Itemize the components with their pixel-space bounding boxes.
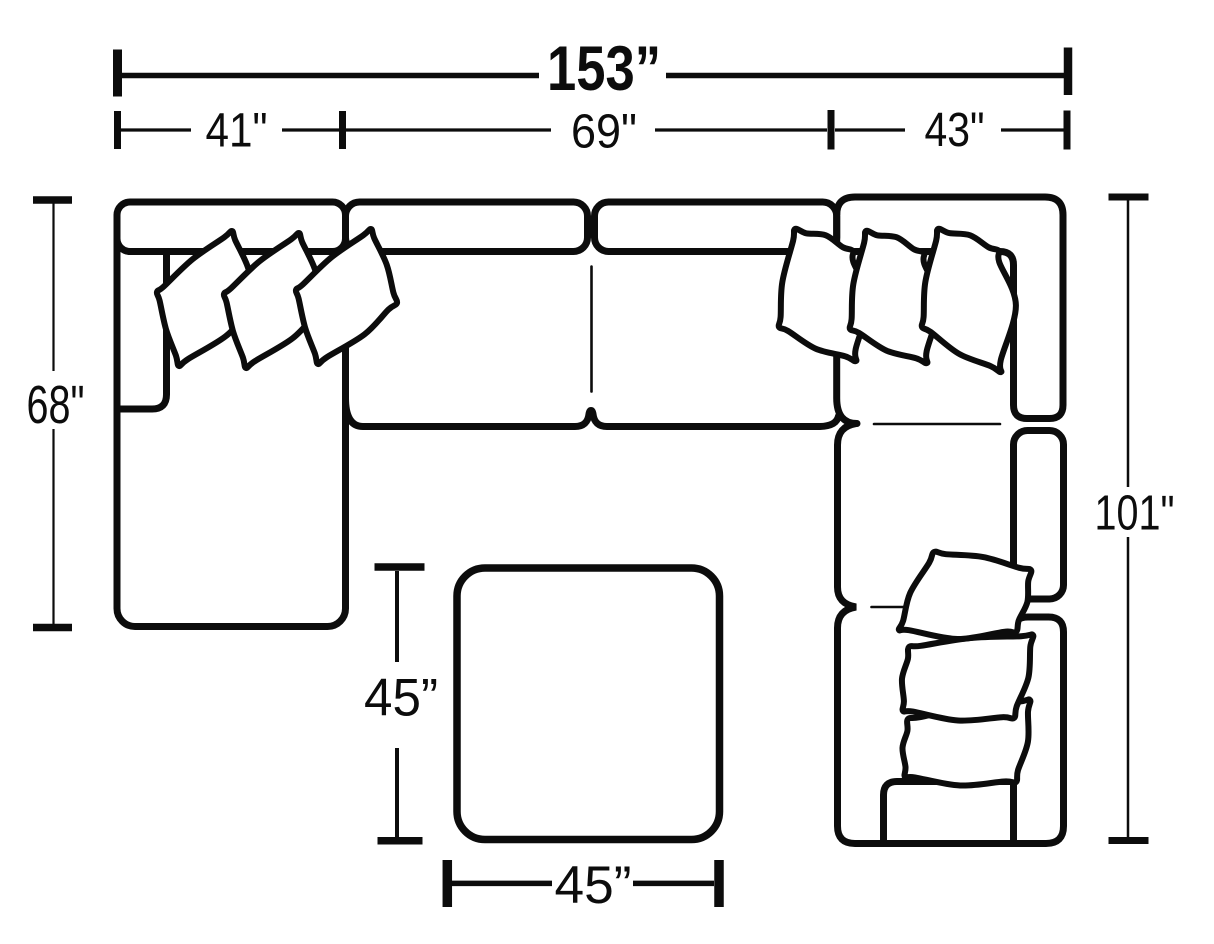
svg-text:69": 69" bbox=[571, 106, 637, 159]
svg-text:45”: 45” bbox=[555, 856, 632, 915]
svg-text:41": 41" bbox=[206, 105, 268, 158]
svg-text:43": 43" bbox=[925, 104, 985, 157]
svg-text:45”: 45” bbox=[364, 669, 438, 728]
svg-text:153”: 153” bbox=[547, 34, 661, 104]
svg-text:68": 68" bbox=[27, 375, 85, 435]
svg-text:101": 101" bbox=[1095, 487, 1175, 541]
